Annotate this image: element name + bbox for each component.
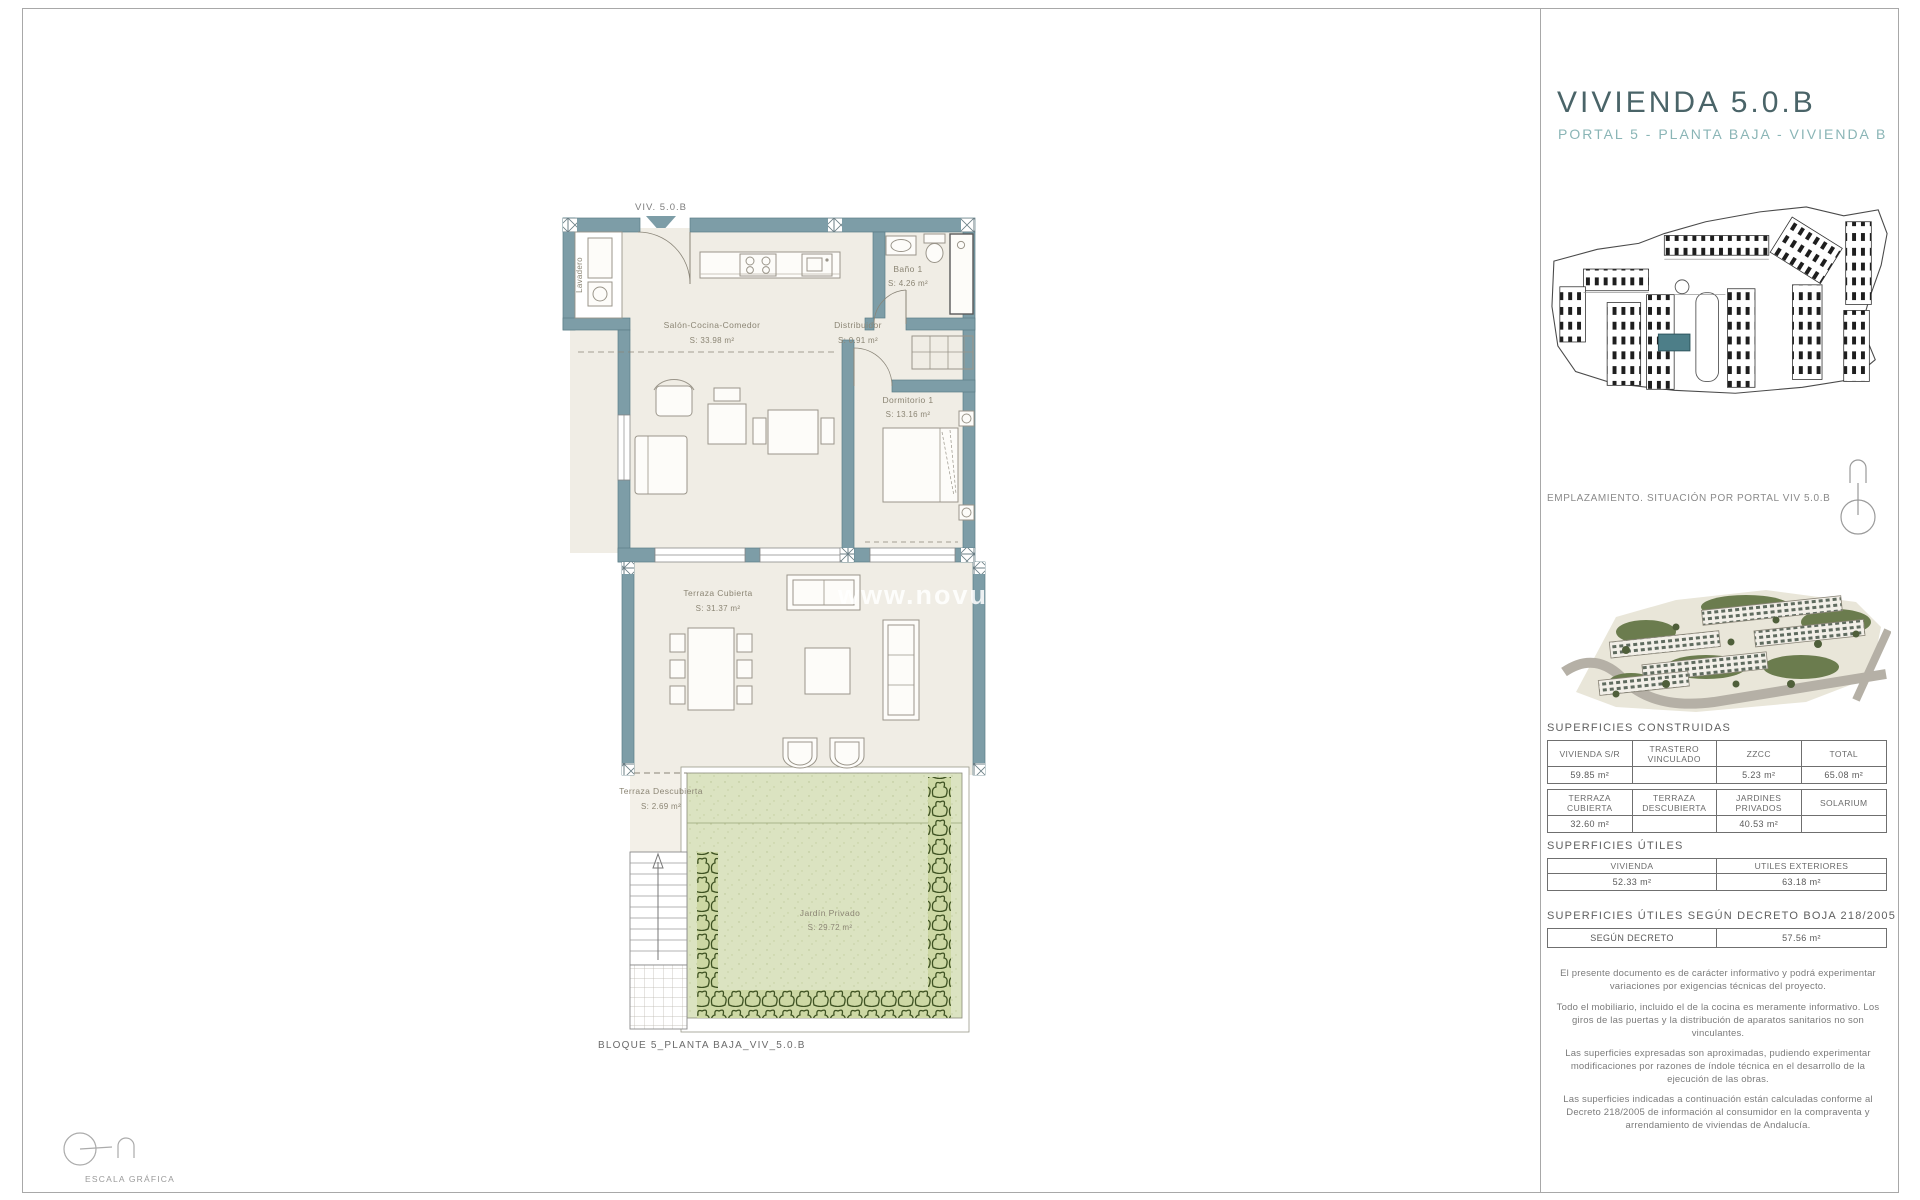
table-header-cell: TOTAL	[1802, 741, 1887, 767]
page-subtitle: PORTAL 5 - PLANTA BAJA - VIVIENDA B	[1558, 126, 1887, 142]
side-sofa	[883, 620, 919, 720]
table-header-cell: TRASTERO VINCULADO	[1633, 741, 1718, 767]
covered-terrace-label: Terraza Cubierta	[683, 588, 752, 598]
laundry-label: Lavadero	[575, 257, 584, 293]
emplazamiento-row: EMPLAZAMIENTO. SITUACIÓN POR PORTAL VIV …	[1547, 455, 1887, 545]
table-header-cell: SOLARIUM	[1802, 790, 1887, 816]
toilet-icon	[924, 234, 945, 263]
table-header-cell: TERRAZA DESCUBIERTA	[1633, 790, 1718, 816]
site-boundary	[1552, 207, 1887, 393]
hall-label: Distribuidor	[834, 320, 882, 330]
bedroom-label: Dormitorio 1	[882, 395, 933, 405]
table-header-cell: TERRAZA CUBIERTA	[1548, 790, 1633, 816]
hall-area: S: 0.91 m²	[838, 336, 878, 345]
site-roundabout	[1675, 280, 1689, 294]
bathroom-label: Baño 1	[893, 264, 922, 274]
table-header-cell: VIVIENDA	[1548, 859, 1717, 874]
bathroom-area: S: 4.26 m²	[888, 279, 928, 288]
unit-label: VIV. 5.0.B	[635, 202, 687, 213]
living-room-area: S: 33.98 m²	[690, 336, 735, 345]
north-scale-icon	[64, 1133, 134, 1165]
tiled-patio	[630, 965, 687, 1029]
plan-sheet: VIV. 5.0.B Jardín Privado S: 29.72 m²	[0, 0, 1920, 1200]
table-header-cell: ZZCC	[1717, 741, 1802, 767]
shower-icon	[950, 234, 973, 314]
utiles-table: VIVIENDA UTILES EXTERIORES 52.33 m² 63.1…	[1547, 858, 1887, 891]
hedge-bottom	[717, 990, 941, 1018]
construidas-table-1: VIVIENDA S/R TRASTERO VINCULADO ZZCC TOT…	[1547, 740, 1887, 784]
table-value-cell: 65.08 m²	[1802, 767, 1887, 783]
garden-label: Jardín Privado	[800, 908, 860, 918]
site-pool	[1696, 293, 1719, 382]
decreto-heading: SUPERFICIES ÚTILES SEGÚN DECRETO BOJA 21…	[1547, 910, 1896, 922]
title-block-divider	[1540, 8, 1541, 1192]
graphic-scale-label: ESCALA GRÁFICA	[85, 1174, 175, 1184]
side-table	[708, 388, 746, 444]
outdoor-dining-table	[670, 628, 752, 710]
covered-terrace-area: S: 31.37 m²	[696, 604, 741, 613]
construidas-table-2: TERRAZA CUBIERTA TERRAZA DESCUBIERTA JAR…	[1547, 789, 1887, 833]
page-title: VIVIENDA 5.0.B	[1557, 86, 1816, 120]
table-label-cell: SEGÚN DECRETO	[1548, 929, 1717, 947]
table-value-cell: 40.53 m²	[1717, 816, 1802, 832]
sofa-icon	[635, 436, 687, 494]
plan-caption: BLOQUE 5_PLANTA BAJA_VIV_5.0.B	[598, 1040, 806, 1051]
table-value-cell	[1633, 767, 1718, 783]
garden-private	[687, 773, 962, 1018]
legal-paragraph: El presente documento es de carácter inf…	[1552, 968, 1884, 994]
emplazamiento-label: EMPLAZAMIENTO. SITUACIÓN POR PORTAL VIV …	[1547, 493, 1830, 504]
open-terrace-label: Terraza Descubierta	[619, 786, 703, 796]
bedroom-area: S: 13.16 m²	[886, 410, 931, 419]
coffee-table	[805, 648, 850, 694]
kitchen-counter	[700, 252, 840, 278]
table-value-cell: 5.23 m²	[1717, 767, 1802, 783]
construidas-heading: SUPERFICIES CONSTRUIDAS	[1547, 722, 1731, 734]
bed-icon	[883, 428, 958, 502]
table-value-cell: 63.18 m²	[1717, 874, 1886, 890]
table-value-cell: 32.60 m²	[1548, 816, 1633, 832]
table-header-cell: JARDINES PRIVADOS	[1717, 790, 1802, 816]
highlighted-unit	[1658, 334, 1690, 351]
hedge-left	[697, 852, 718, 1018]
site-plan	[1548, 200, 1893, 412]
decreto-table: SEGÚN DECRETO 57.56 m²	[1547, 928, 1887, 948]
table-value-cell: 57.56 m²	[1717, 929, 1886, 947]
watermark: www.novus	[837, 580, 1005, 610]
table-value-cell	[1633, 816, 1718, 832]
legal-paragraph: Las superficies indicadas a continuación…	[1552, 1094, 1884, 1132]
vanity-sink-icon	[886, 236, 916, 255]
table-value-cell: 52.33 m²	[1548, 874, 1717, 890]
laundry-bay: Lavadero	[575, 232, 622, 318]
table-header-cell: VIVIENDA S/R	[1548, 741, 1633, 767]
aerial-render-image	[1556, 572, 1891, 720]
garden-area: S: 29.72 m²	[808, 923, 853, 932]
graphic-scale: ESCALA GRÁFICA	[48, 1122, 178, 1192]
utiles-heading: SUPERFICIES ÚTILES	[1547, 840, 1684, 852]
hedge-right	[928, 777, 951, 1018]
open-terrace-area: S: 2.69 m²	[641, 802, 681, 811]
living-room-label: Salón-Cocina-Comedor	[664, 320, 761, 330]
legal-paragraph: Todo el mobiliario, incluido el de la co…	[1552, 1002, 1884, 1040]
table-value-cell: 59.85 m²	[1548, 767, 1633, 783]
floor-plan: VIV. 5.0.B Jardín Privado S: 29.72 m²	[540, 190, 1020, 1070]
legal-paragraph: Las superficies expresadas son aproximad…	[1552, 1048, 1884, 1086]
stairs	[630, 852, 687, 965]
north-arrow-icon	[1837, 455, 1881, 541]
table-header-cell: UTILES EXTERIORES	[1717, 859, 1886, 874]
table-value-cell	[1802, 816, 1887, 832]
